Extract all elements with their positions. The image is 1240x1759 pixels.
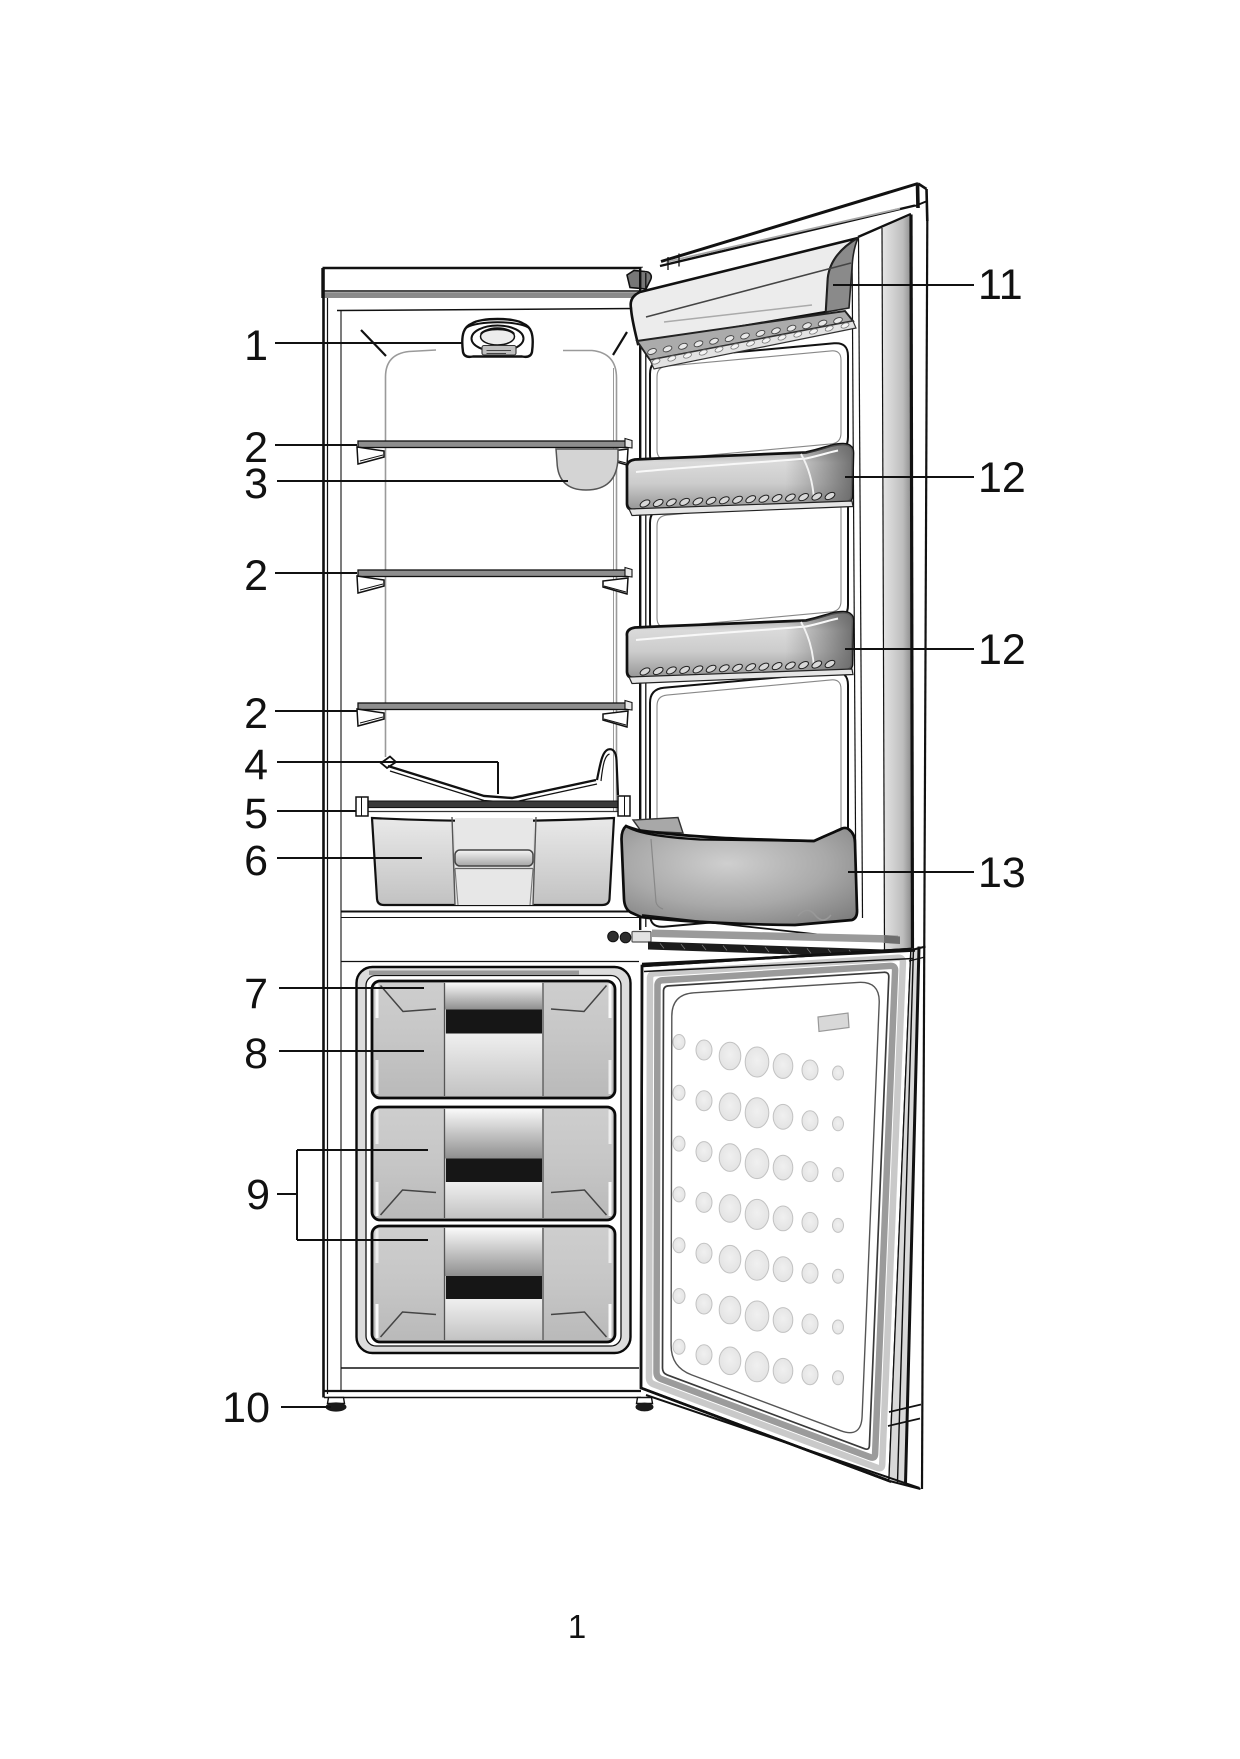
svg-text:1: 1	[244, 322, 268, 370]
svg-text:11: 11	[978, 261, 1023, 309]
svg-text:9: 9	[246, 1171, 270, 1219]
svg-text:10: 10	[222, 1384, 270, 1432]
svg-text:12: 12	[978, 626, 1026, 674]
svg-text:3: 3	[244, 460, 268, 508]
svg-text:7: 7	[244, 970, 268, 1018]
svg-text:12: 12	[978, 454, 1026, 502]
svg-text:4: 4	[244, 741, 268, 789]
svg-text:2: 2	[244, 552, 268, 600]
svg-text:8: 8	[244, 1030, 268, 1078]
svg-text:5: 5	[244, 790, 268, 838]
svg-text:13: 13	[978, 849, 1026, 897]
svg-text:6: 6	[244, 837, 268, 885]
svg-text:2: 2	[244, 690, 268, 738]
svg-text:1: 1	[568, 1608, 586, 1645]
